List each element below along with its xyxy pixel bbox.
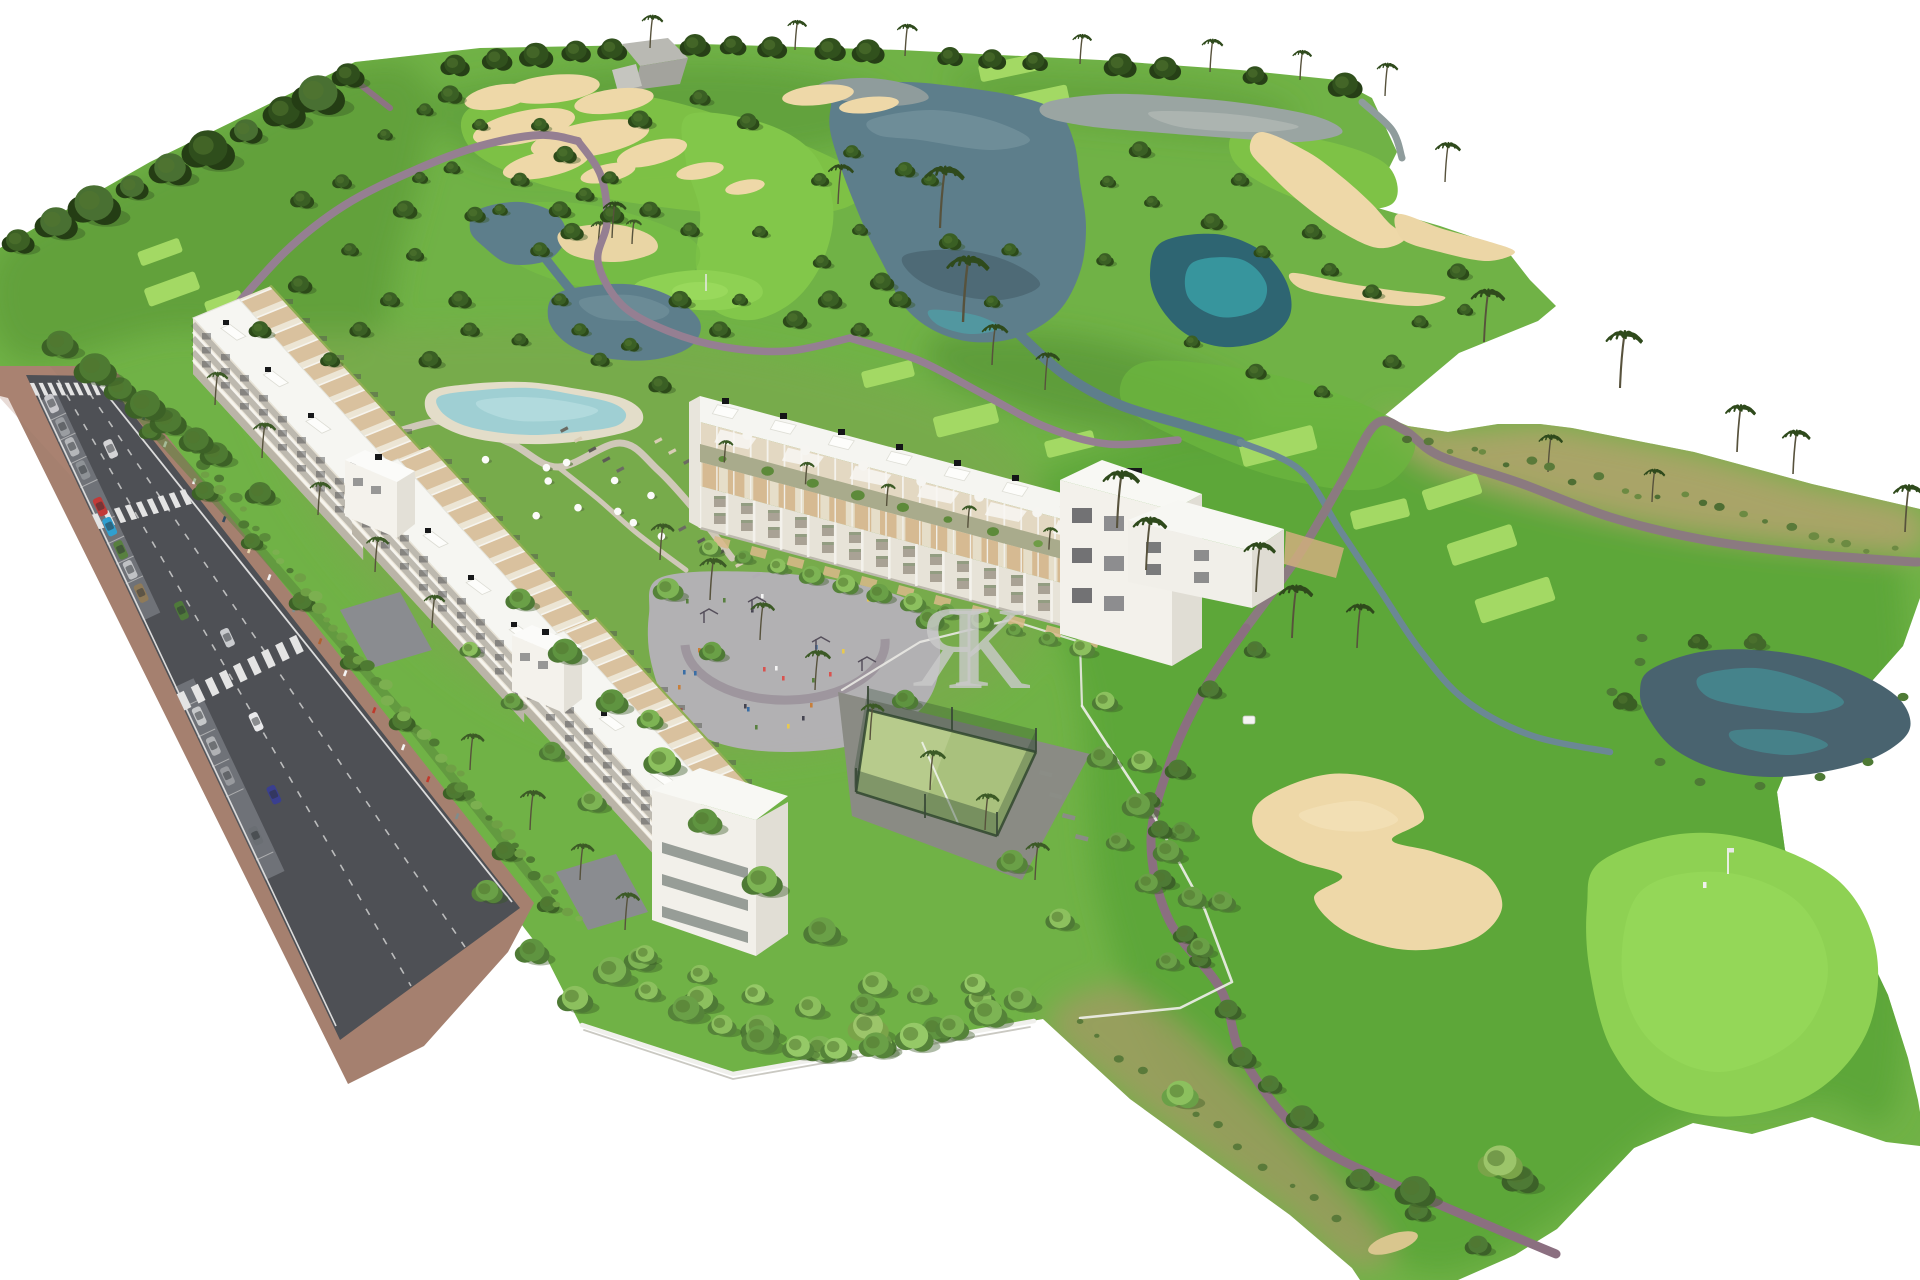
svg-text:K: K	[946, 583, 1031, 714]
